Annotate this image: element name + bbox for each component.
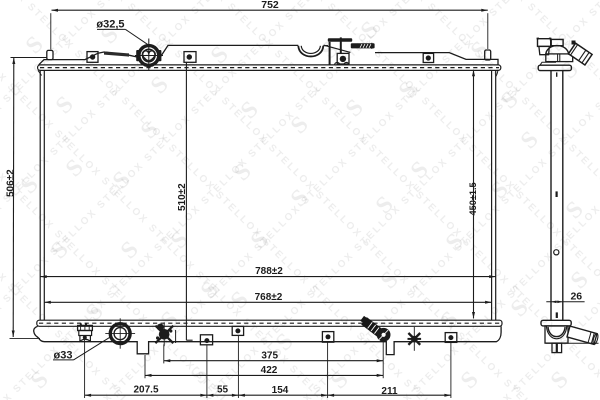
svg-text:788±2: 788±2: [255, 266, 283, 277]
svg-text:422: 422: [261, 365, 278, 376]
svg-text:752: 752: [261, 0, 279, 11]
svg-text:207.5: 207.5: [133, 385, 158, 396]
svg-text:375: 375: [261, 350, 278, 361]
svg-text:450±1.5: 450±1.5: [468, 182, 478, 215]
svg-text:26: 26: [570, 290, 582, 302]
svg-text:ø32,5: ø32,5: [96, 18, 124, 30]
svg-text:768±2: 768±2: [255, 292, 283, 303]
svg-text:55: 55: [217, 385, 229, 396]
svg-text:506±2: 506±2: [5, 169, 16, 197]
svg-text:154: 154: [272, 385, 289, 396]
svg-text:211: 211: [381, 386, 398, 397]
svg-text:510±2: 510±2: [177, 183, 188, 211]
